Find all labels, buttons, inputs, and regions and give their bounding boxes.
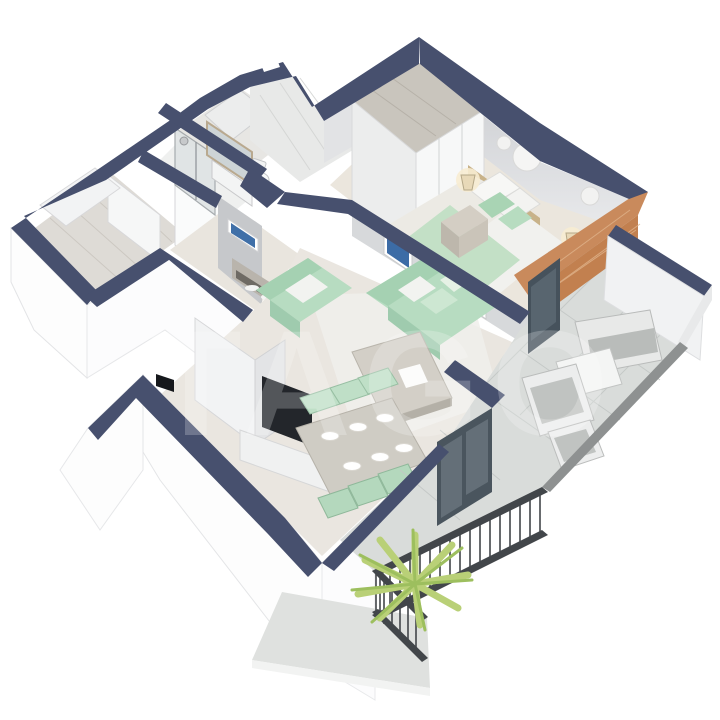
svg-text:TAGO: TAGO <box>150 299 620 467</box>
